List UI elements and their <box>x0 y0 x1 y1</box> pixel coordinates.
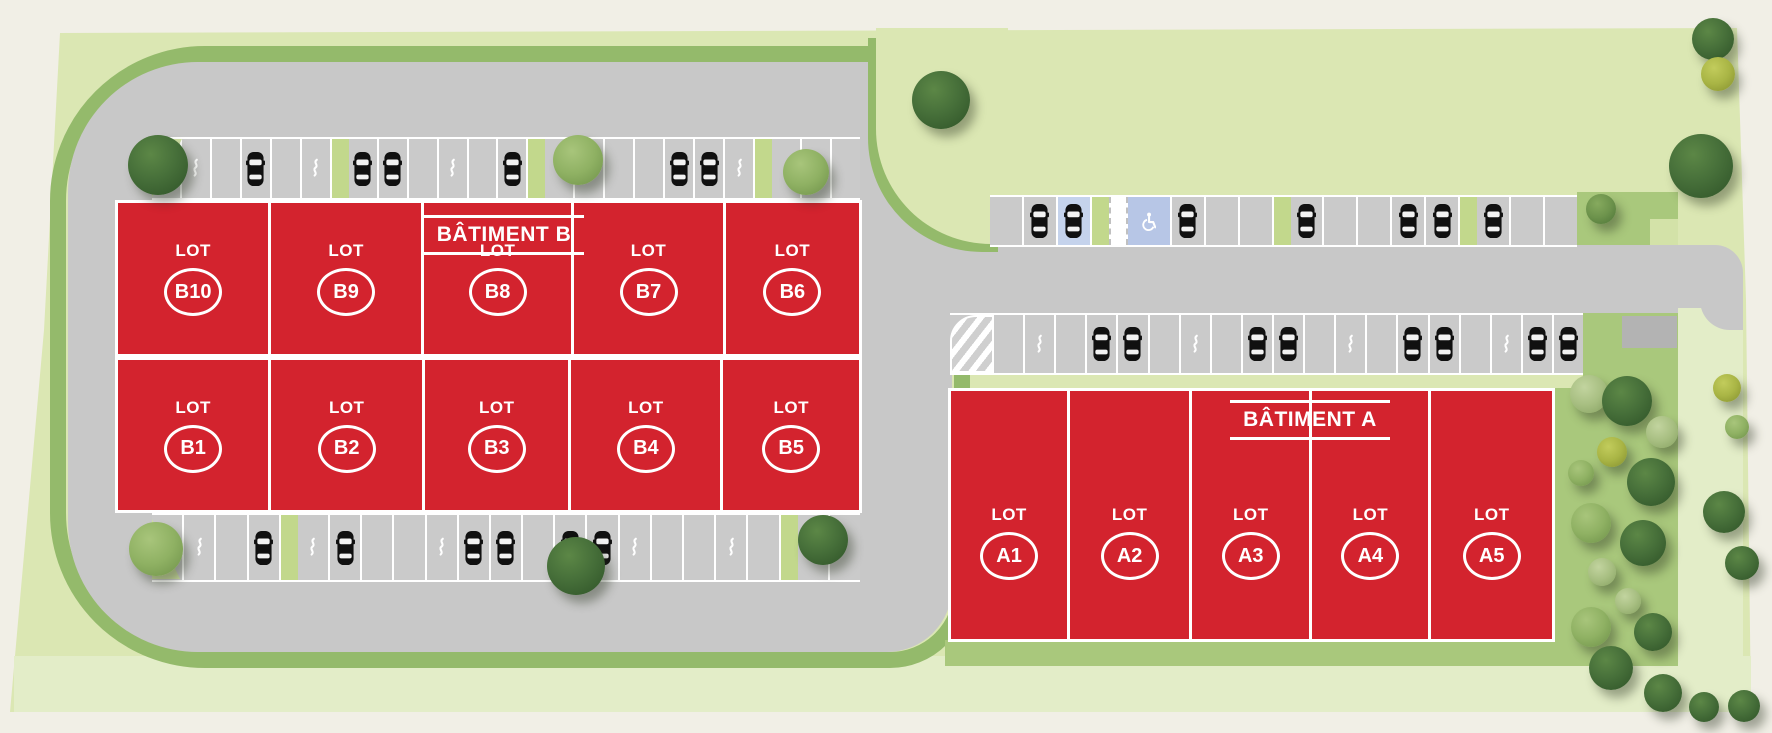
ev-charging-icon <box>629 537 640 558</box>
parking-spot-empty <box>635 139 665 198</box>
parking-spot-planter <box>1092 197 1109 245</box>
lot-A2[interactable]: LOTA2 <box>1070 391 1192 639</box>
parking-spot-empty <box>409 139 439 198</box>
tree <box>912 71 970 129</box>
parking-spot-car <box>1274 315 1305 373</box>
parking-spot-car <box>1243 315 1274 373</box>
parking-spot-empty <box>1212 315 1243 373</box>
parking-spot-planter <box>332 139 349 198</box>
parking-spot-empty <box>1305 315 1336 373</box>
tree <box>1589 646 1633 690</box>
parking-spot-ev <box>725 139 755 198</box>
ev-charging-icon <box>436 537 447 558</box>
car-top-icon <box>383 151 402 187</box>
lot-word: LOT <box>773 398 809 418</box>
tree <box>1646 416 1678 448</box>
car-top-icon <box>1559 326 1578 362</box>
tree <box>1568 460 1594 486</box>
lot-code-badge: B2 <box>318 425 376 473</box>
tree <box>1692 18 1734 60</box>
car-top-icon <box>336 530 355 566</box>
parking-spot-ev <box>184 515 216 580</box>
car-top-icon <box>1484 203 1503 239</box>
parking-spot-empty <box>272 139 302 198</box>
car-top-icon <box>503 151 522 187</box>
parking-spot-empty <box>994 315 1025 373</box>
lot-word: LOT <box>479 398 515 418</box>
car-top-icon <box>353 151 372 187</box>
car-top-icon <box>1403 326 1422 362</box>
lot-code-badge: B10 <box>164 268 222 316</box>
lot-code-badge: B4 <box>617 425 675 473</box>
parking-spot-empty <box>832 139 860 198</box>
parking-spot-empty <box>1545 197 1577 245</box>
parking-spot-empty <box>1324 197 1358 245</box>
tree <box>1620 520 1666 566</box>
parking-spot-car <box>459 515 491 580</box>
lot-word: LOT <box>1353 505 1389 525</box>
site-plan: LOTB10LOTB9LOTB8LOTB7LOTB6 LOTB1LOTB2LOT… <box>0 0 1772 733</box>
tree <box>1615 588 1641 614</box>
tree <box>128 135 188 195</box>
tree <box>1602 376 1652 426</box>
parking-spot-empty <box>684 515 716 580</box>
parking-spot-car <box>242 139 272 198</box>
ev-charging-icon <box>734 158 745 179</box>
parking-spot-empty <box>1358 197 1392 245</box>
batiment-a-label: BÂTIMENT A <box>1230 400 1390 440</box>
parking-spot-ev <box>298 515 330 580</box>
tree <box>783 149 829 195</box>
lot-code-badge: B6 <box>763 268 821 316</box>
parking-spot-empty <box>652 515 684 580</box>
parking-row-a-north <box>990 195 1577 247</box>
lot-code-badge: B5 <box>762 425 820 473</box>
tree <box>547 537 605 595</box>
parking-spot-empty <box>212 139 242 198</box>
parking-spot-empty <box>362 515 394 580</box>
parking-spot-empty <box>1056 315 1087 373</box>
tree <box>1725 546 1759 580</box>
ev-charging-icon <box>190 158 201 179</box>
tree <box>1725 415 1749 439</box>
parking-spot-car <box>695 139 725 198</box>
parking-spot-car <box>1398 315 1429 373</box>
lot-code-badge: B1 <box>164 425 222 473</box>
ev-charging-icon <box>194 537 205 558</box>
car-top-icon <box>670 151 689 187</box>
tree <box>1571 607 1611 647</box>
wheelchair-icon <box>1141 212 1156 231</box>
parking-spot-empty <box>748 515 780 580</box>
car-top-icon <box>1297 203 1316 239</box>
parking-row-b-north <box>152 137 860 200</box>
lot-B7[interactable]: LOTB7 <box>574 203 726 354</box>
parking-spot-empty <box>1150 315 1181 373</box>
parking-spot-car <box>349 139 379 198</box>
parking-spot-walkway <box>1109 197 1128 245</box>
lot-code-badge: A2 <box>1101 532 1159 580</box>
lot-B3[interactable]: LOTB3 <box>425 360 571 510</box>
lot-B4[interactable]: LOTB4 <box>571 360 723 510</box>
tree <box>1634 613 1672 651</box>
parking-row-a-south <box>950 313 1583 375</box>
tree <box>1703 491 1745 533</box>
parking-spot-empty <box>1511 197 1545 245</box>
lot-word: LOT <box>328 241 364 261</box>
tree <box>1571 503 1611 543</box>
parking-spot-car <box>1291 197 1325 245</box>
tree <box>1669 134 1733 198</box>
parking-spot-empty <box>216 515 248 580</box>
lot-B5[interactable]: LOTB5 <box>723 360 859 510</box>
parking-spot-empty <box>1461 315 1492 373</box>
lot-code-badge: A5 <box>1463 532 1521 580</box>
parking-row-b-south <box>152 513 860 582</box>
lot-B10[interactable]: LOTB10 <box>118 203 271 354</box>
ev-charging-icon <box>307 537 318 558</box>
parking-spot-empty <box>1206 197 1240 245</box>
tree <box>1588 558 1616 586</box>
car-top-icon <box>496 530 515 566</box>
parking-spot-car <box>330 515 362 580</box>
tree <box>1627 458 1675 506</box>
parking-spot-car <box>249 515 281 580</box>
lot-word: LOT <box>1474 505 1510 525</box>
lot-code-badge: B7 <box>620 268 678 316</box>
lot-B1[interactable]: LOTB1 <box>118 360 271 510</box>
tree <box>1586 194 1616 224</box>
parking-spot-ev <box>427 515 459 580</box>
lot-B9[interactable]: LOTB9 <box>271 203 424 354</box>
parking-spot-car <box>379 139 409 198</box>
ev-charging-icon <box>1345 334 1356 355</box>
car-top-icon <box>246 151 265 187</box>
parking-spot-empty <box>1240 197 1274 245</box>
car-top-icon <box>1279 326 1298 362</box>
parking-spot-ev <box>1336 315 1367 373</box>
parking-spot-car <box>665 139 695 198</box>
tree <box>1728 690 1760 722</box>
parking-spot-planter <box>1274 197 1291 245</box>
parking-spot-car <box>1554 315 1583 373</box>
parking-spot-empty <box>1367 315 1398 373</box>
lot-code-badge: A3 <box>1222 532 1280 580</box>
parking-spot-car <box>1523 315 1554 373</box>
lot-word: LOT <box>1112 505 1148 525</box>
parking-spot-car <box>1087 315 1118 373</box>
utility-building <box>1622 316 1677 348</box>
parking-spot-empty <box>469 139 499 198</box>
parking-spot-ev <box>1181 315 1212 373</box>
parking-spot-car <box>498 139 528 198</box>
tree <box>1644 674 1682 712</box>
ev-charging-icon <box>1034 334 1045 355</box>
parking-spot-planter <box>755 139 772 198</box>
lot-code-badge: B9 <box>317 268 375 316</box>
lot-word: LOT <box>1233 505 1269 525</box>
tree <box>553 135 603 185</box>
tree <box>129 522 183 576</box>
tree <box>798 515 848 565</box>
parking-spot-planter <box>281 515 298 580</box>
tree <box>1597 437 1627 467</box>
parking-spot-car <box>491 515 523 580</box>
ev-charging-icon <box>447 158 458 179</box>
car-top-icon <box>254 530 273 566</box>
parking-spot-ev <box>439 139 469 198</box>
car-top-icon <box>1435 326 1454 362</box>
road-a <box>950 245 1743 313</box>
ev-charging-icon <box>310 158 321 179</box>
car-top-icon <box>1064 203 1083 239</box>
parking-spot-car <box>1172 197 1206 245</box>
parking-spot-ev <box>302 139 332 198</box>
parking-spot-ev <box>1492 315 1523 373</box>
lot-B6[interactable]: LOTB6 <box>726 203 859 354</box>
lot-B2[interactable]: LOTB2 <box>271 360 425 510</box>
car-top-icon <box>1092 326 1111 362</box>
lot-word: LOT <box>175 398 211 418</box>
parking-spot-planter <box>1460 197 1477 245</box>
tree <box>1713 374 1741 402</box>
ev-charging-icon <box>1190 334 1201 355</box>
parking-spot-empty <box>605 139 635 198</box>
parking-spot-car <box>1392 197 1426 245</box>
lot-word: LOT <box>631 241 667 261</box>
car-top-icon <box>464 530 483 566</box>
lot-code-badge: B8 <box>469 268 527 316</box>
ev-charging-icon <box>1501 334 1512 355</box>
parking-spot-car <box>1024 197 1058 245</box>
lot-word: LOT <box>628 398 664 418</box>
parking-spot-ev <box>620 515 652 580</box>
lot-word: LOT <box>991 505 1027 525</box>
parking-spot-car <box>1430 315 1461 373</box>
car-top-icon <box>1528 326 1547 362</box>
car-top-icon <box>1123 326 1142 362</box>
parking-spot-planter <box>781 515 798 580</box>
car-top-icon <box>1399 203 1418 239</box>
lot-word: LOT <box>175 241 211 261</box>
tree <box>1689 692 1719 722</box>
lot-code-badge: B3 <box>468 425 526 473</box>
building-b-lots-south: LOTB1LOTB2LOTB3LOTB4LOTB5 <box>115 357 862 513</box>
parking-spot-car-blue <box>1058 197 1092 245</box>
ev-charging-icon <box>726 537 737 558</box>
car-top-icon <box>1178 203 1197 239</box>
parking-spot-planter <box>528 139 545 198</box>
lot-A1[interactable]: LOTA1 <box>951 391 1070 639</box>
parking-spot-car <box>1477 197 1511 245</box>
lot-code-badge: A4 <box>1341 532 1399 580</box>
car-top-icon <box>1030 203 1049 239</box>
car-top-icon <box>1248 326 1267 362</box>
tree <box>1701 57 1735 91</box>
parking-spot-hatch <box>950 315 994 373</box>
parking-spot-empty <box>990 197 1024 245</box>
planter-pale-patch <box>1650 219 1678 245</box>
parking-spot-handicap <box>1128 197 1172 245</box>
lot-A5[interactable]: LOTA5 <box>1431 391 1552 639</box>
batiment-b-label: BÂTIMENT B <box>424 215 584 255</box>
car-top-icon <box>700 151 719 187</box>
lot-code-badge: A1 <box>980 532 1038 580</box>
lot-word: LOT <box>775 241 811 261</box>
parking-spot-car <box>1426 197 1460 245</box>
lot-word: LOT <box>329 398 365 418</box>
parking-spot-car <box>1118 315 1149 373</box>
parking-spot-ev <box>716 515 748 580</box>
parking-spot-empty <box>394 515 426 580</box>
parking-spot-ev <box>1025 315 1056 373</box>
car-top-icon <box>1433 203 1452 239</box>
